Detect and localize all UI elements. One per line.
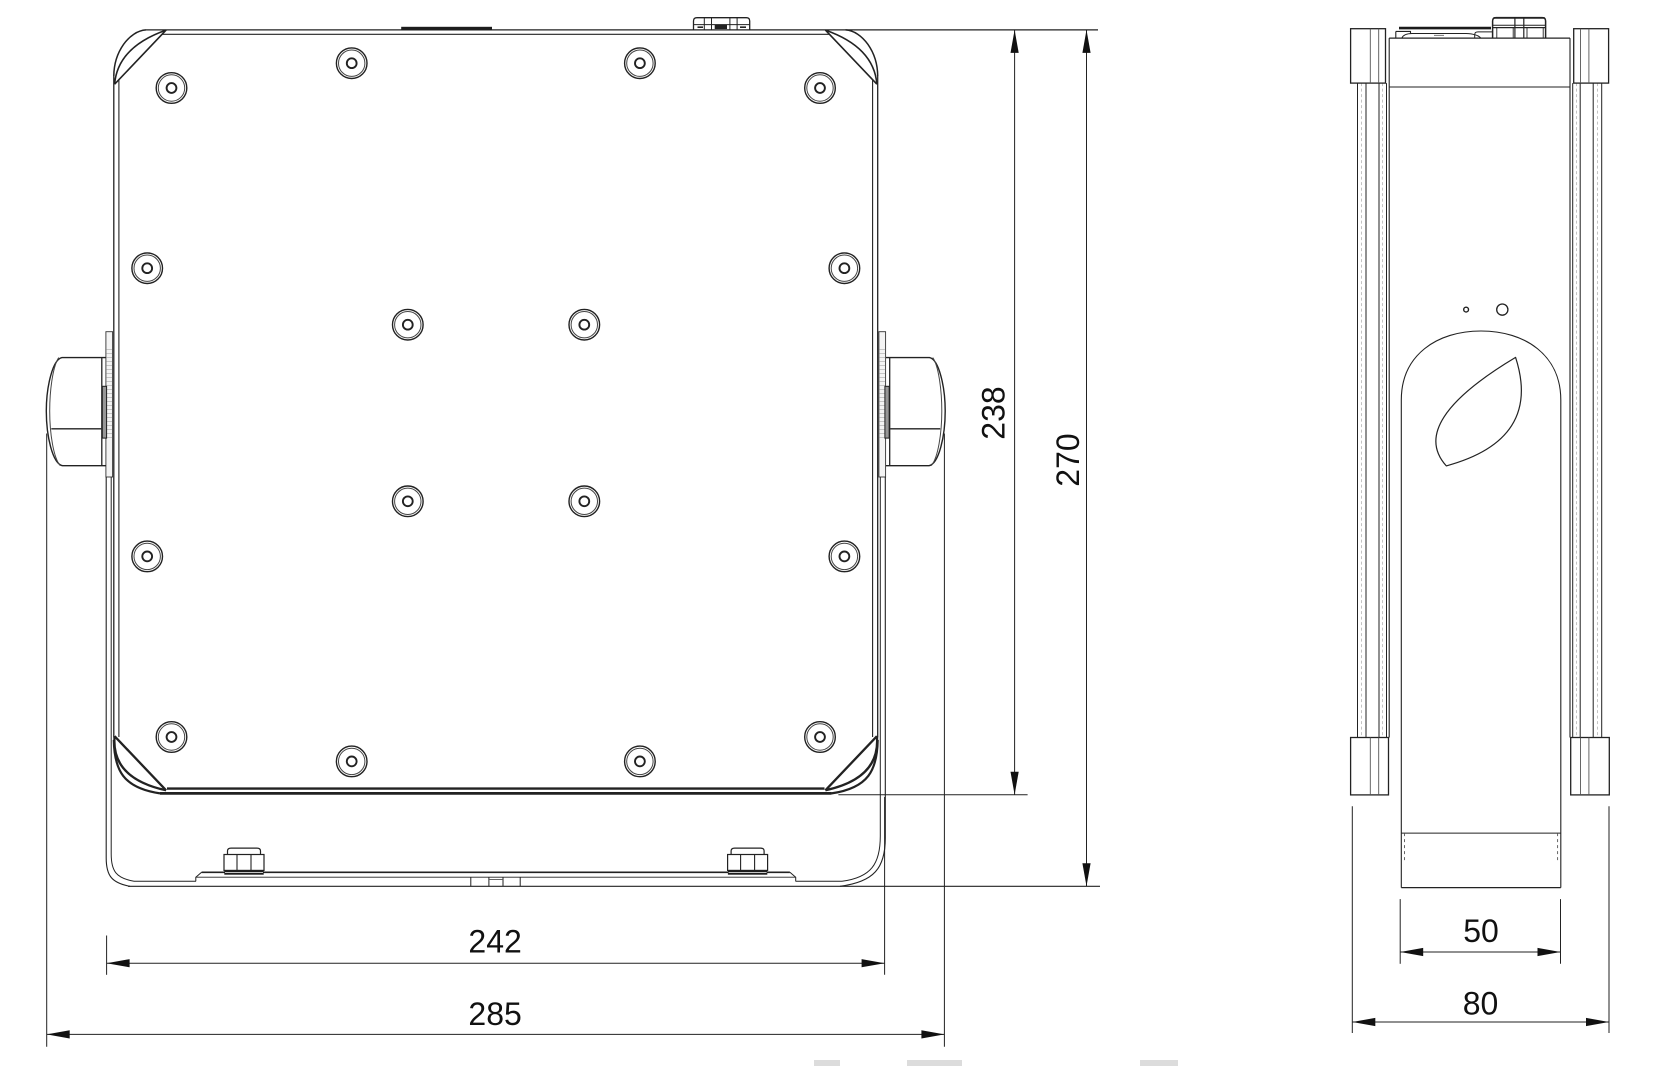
- svg-text:270: 270: [1050, 433, 1086, 486]
- svg-text:285: 285: [468, 996, 521, 1032]
- svg-text:242: 242: [468, 924, 521, 960]
- svg-text:80: 80: [1463, 985, 1499, 1021]
- svg-text:50: 50: [1463, 913, 1499, 949]
- svg-text:238: 238: [976, 386, 1012, 439]
